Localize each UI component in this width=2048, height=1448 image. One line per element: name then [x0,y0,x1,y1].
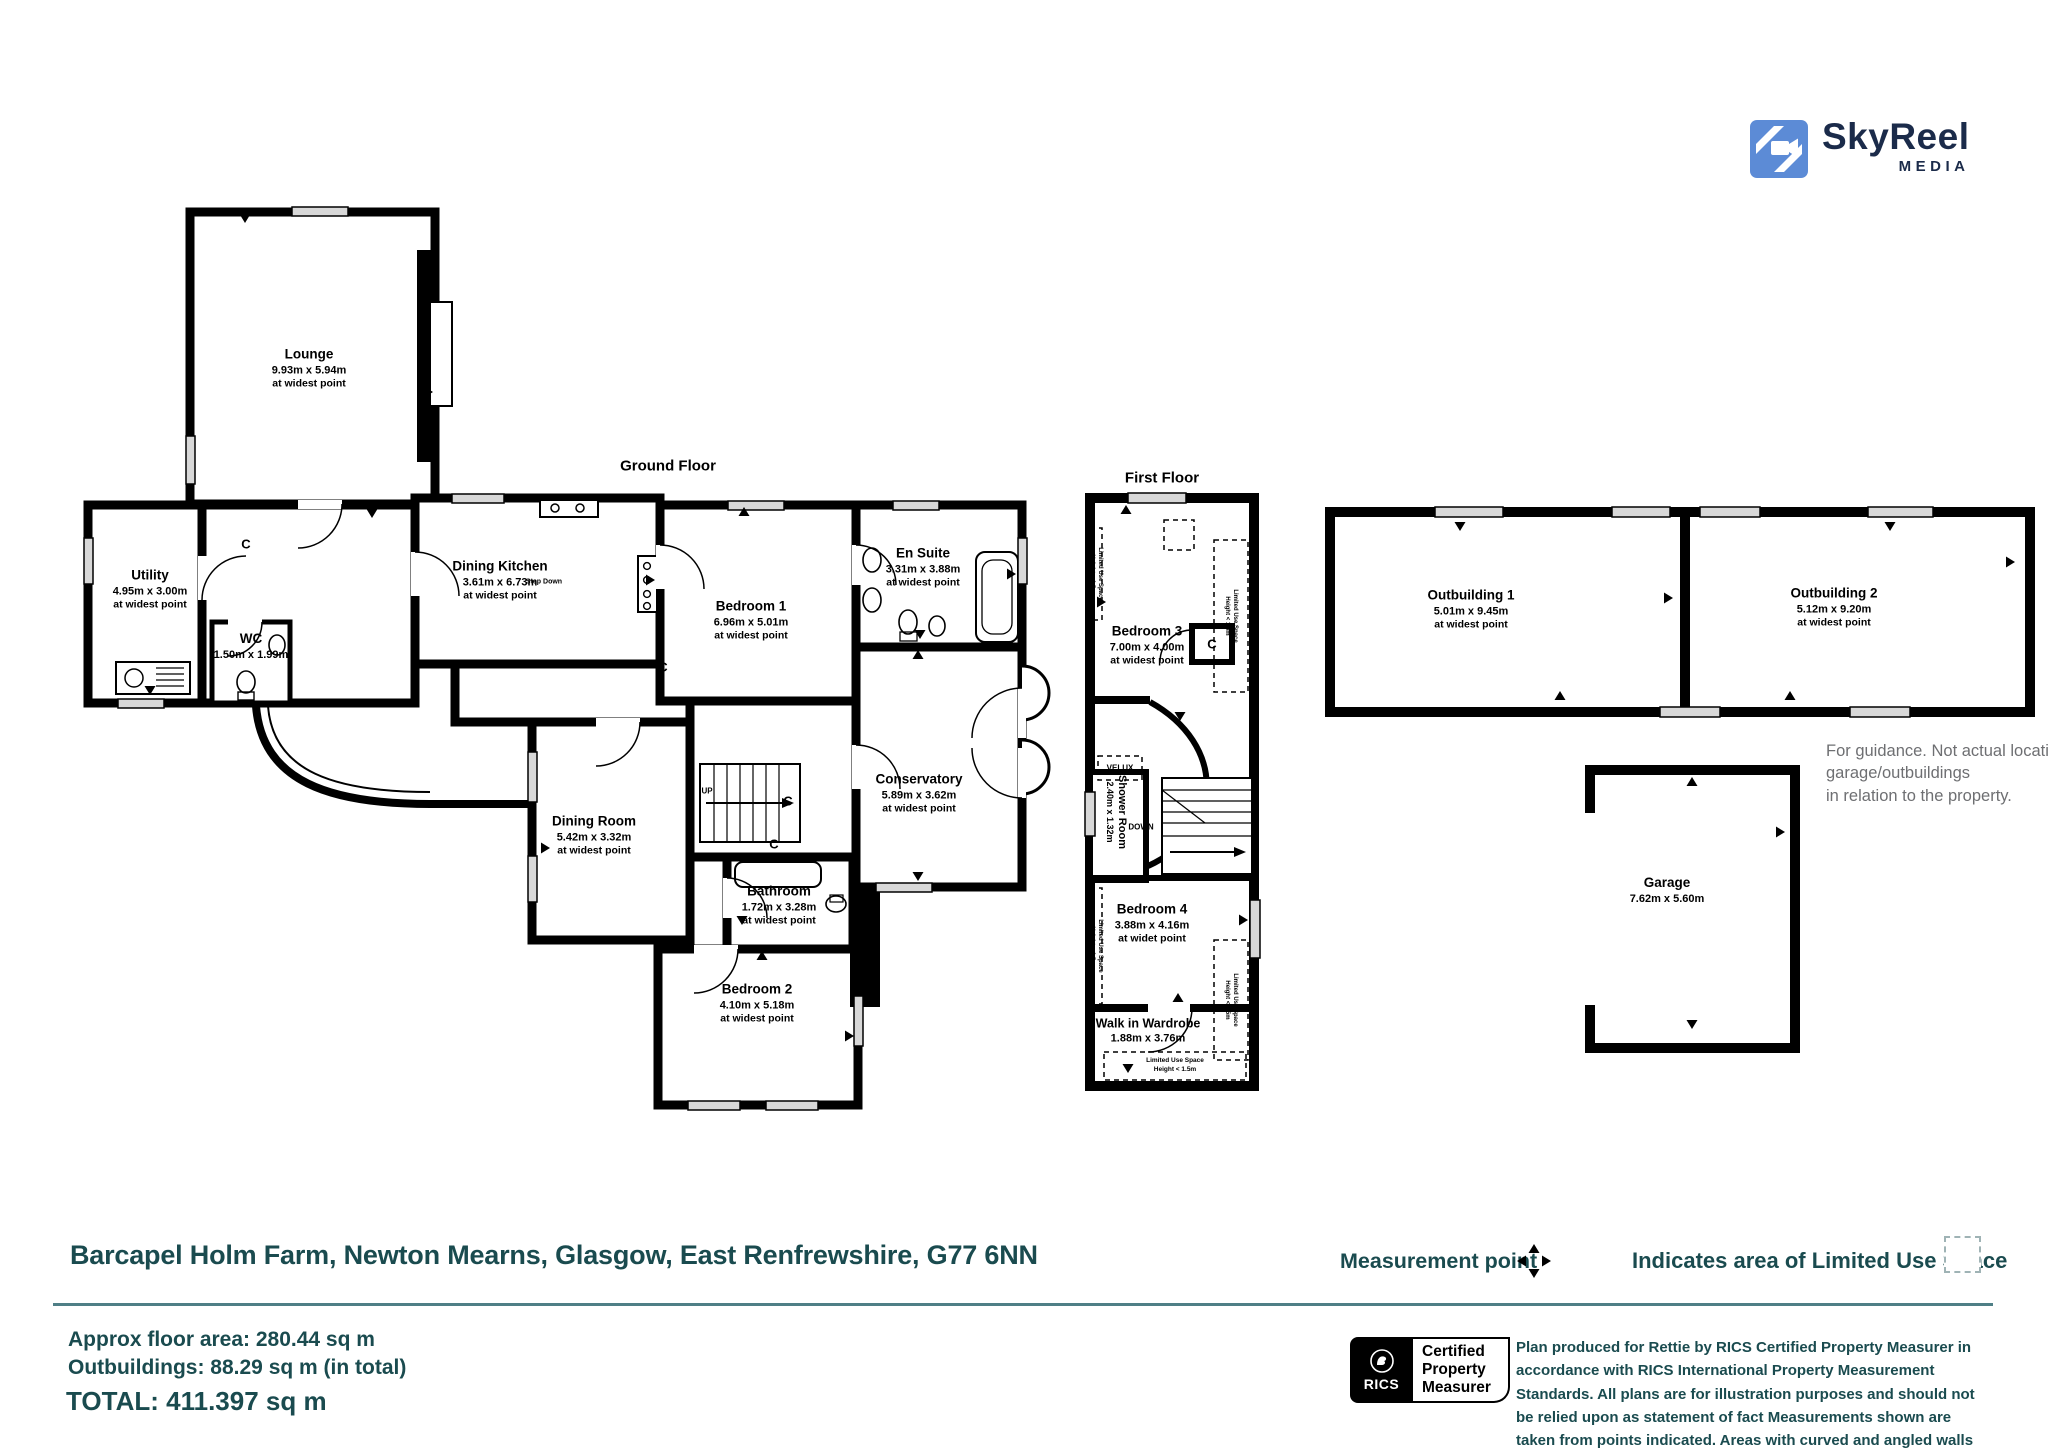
limited-use-note: Limited Use SpaceHeight < 1.5m [1146,1057,1204,1075]
logo-brand-text: SkyReel [1822,118,1970,155]
logo-media-text: MEDIA [1822,158,1970,175]
room-label-bedroom3: Bedroom 37.00m x 4.00mat widest point [1110,622,1185,667]
room-label-en-suite: En Suite3.31m x 3.88mat widest point [886,544,961,589]
first-floor-title: First Floor [1125,470,1199,487]
approx-floor-area: Approx floor area: 280.44 sq m [68,1328,375,1352]
measurement-point-label: Measurement point [1340,1249,1537,1274]
footer-divider [53,1303,1993,1306]
garage-plan [1585,765,1800,1053]
rics-lion-icon [1369,1348,1395,1374]
room-label-shower-room: Shower Room2.40m x 1.32m [1103,775,1129,849]
step-down-label: Step Down [526,579,562,586]
measurement-point-icon [1516,1243,1552,1279]
cupboard-label: C [658,660,667,675]
rics-certified-panel: Certified Property Measurer [1413,1337,1510,1403]
velux-label: VELUX [1107,764,1134,773]
property-address: Barcapel Holm Farm, Newton Mearns, Glasg… [70,1240,1038,1271]
room-label-bedroom4: Bedroom 43.88m x 4.16mat widet point [1115,900,1190,945]
room-label-utility: Utility4.95m x 3.00mat widest point [113,566,188,611]
stairs-down-label: DOWN [1128,823,1153,832]
rics-logo: RICS [1350,1337,1413,1403]
limited-use-legend-swatch [1944,1236,1981,1273]
room-label-outbuilding2: Outbuilding 25.12m x 9.20mat widest poin… [1791,584,1878,629]
total-area: TOTAL: 411.397 sq m [66,1386,327,1417]
stairs-up-label: UP [701,787,712,796]
cupboard-label: C [1207,637,1216,652]
room-label-outbuilding1: Outbuilding 15.01m x 9.45mat widest poin… [1428,586,1515,631]
cupboard-label: C [241,537,250,552]
floor-plan-drawing [0,0,2048,1448]
room-label-bathroom: Bathroom1.72m x 3.28mat widest point [742,882,817,927]
outbuildings-area: Outbuildings: 88.29 sq m (in total) [68,1356,406,1380]
rics-badge: RICS Certified Property Measurer [1350,1337,1510,1403]
room-label-bedroom2: Bedroom 24.10m x 5.18mat widest point [720,980,795,1025]
disclaimer-text: Plan produced for Rettie by RICS Certifi… [1516,1336,1986,1448]
room-label-bedroom1: Bedroom 16.96m x 5.01mat widest point [714,597,789,642]
room-label-dining-room: Dining Room5.42m x 3.32mat widest point [552,812,636,857]
room-label-wardrobe: Walk in Wardrobe1.88m x 3.76m [1096,1016,1201,1047]
room-label-wc: WC1.50m x 1.99m [214,630,289,662]
floorplan-page: Ground Floor First Floor Lounge9.93m x 5… [0,0,2048,1448]
limited-use-note: Limited Use SpaceHeight < 1.5m [1088,919,1104,972]
guidance-note: For guidance. Not actual location of gar… [1826,740,2048,807]
cupboard-label: C [783,794,792,809]
ground-floor-title: Ground Floor [620,458,716,475]
cupboard-label: C [769,837,778,852]
limited-use-note: Limited Use SpaceHeight < 1.5m [1223,589,1239,642]
room-label-lounge: Lounge9.93m x 5.94mat widest point [272,345,347,390]
limited-use-note: Limited Use SpaceHeight < 1.5m [1223,973,1239,1026]
room-label-conservatory: Conservatory5.89m x 3.62mat widest point [875,770,962,815]
limited-use-note: Limited Use SpaceHeight < 1.5m [1088,547,1104,600]
room-label-garage: Garage7.62m x 5.60m [1630,874,1705,906]
skyreel-logo: SkyReel MEDIA [1750,118,1970,180]
skyreel-logo-icon [1750,118,1808,180]
